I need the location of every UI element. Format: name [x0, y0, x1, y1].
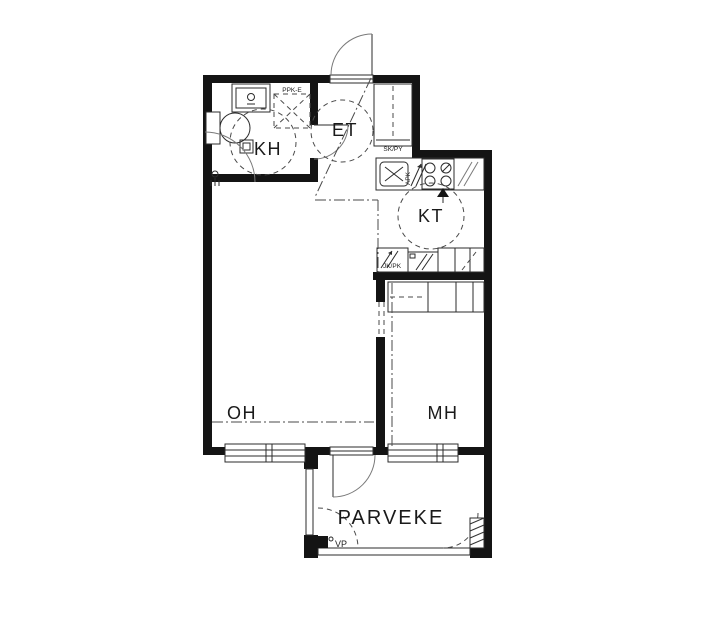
- room-label-kh: KH: [254, 139, 282, 159]
- room-label-et: ET: [332, 120, 358, 140]
- annotation-apk: APK: [405, 171, 412, 185]
- bedroom-wardrobes: [388, 282, 484, 312]
- annotation-ppk-e: PPK-E: [282, 87, 302, 94]
- washbasin-icon: [232, 84, 270, 112]
- exterior-walls: [203, 75, 492, 558]
- balcony-door: [333, 455, 375, 497]
- room-label-oh: OH: [227, 403, 257, 423]
- hall-closet: [374, 84, 412, 146]
- worktop-marks: [458, 162, 478, 186]
- room-label-mh: MH: [428, 403, 459, 423]
- annotation-sk-py: SK/PY: [383, 146, 403, 153]
- bedroom-doorway: [379, 302, 384, 337]
- kitchen-appliance-box: [408, 252, 438, 272]
- balcony-door-threshold: [330, 447, 373, 455]
- kitchen-lower-cabinets: [438, 248, 484, 272]
- balcony-hatched-panel: [470, 518, 484, 548]
- entry-door: [331, 34, 372, 75]
- window-mh: [388, 444, 458, 462]
- room-label-parveke: PARVEKE: [338, 507, 445, 529]
- annotation-jk-pk: JK/PK: [383, 263, 402, 270]
- floor-plan: KH ET KT OH MH PARVEKE PPK-E SK/PY JK/PK…: [0, 0, 718, 634]
- kitchen-sink-icon: [380, 162, 408, 186]
- window-oh: [225, 444, 305, 462]
- toilet-icon: [206, 112, 250, 144]
- dishwasher-reservation-mark: [411, 164, 426, 186]
- floor-drain-icon: [240, 140, 253, 153]
- entry-threshold: [330, 75, 373, 83]
- annotation-vp: VP: [335, 539, 347, 549]
- floor-plan-drawing: KH ET KT OH MH PARVEKE PPK-E SK/PY JK/PK…: [0, 0, 718, 634]
- room-label-kt: KT: [418, 206, 444, 226]
- stove-icon: [422, 159, 454, 189]
- washer-reservation-box: [274, 94, 310, 128]
- water-point-icon: [316, 536, 333, 548]
